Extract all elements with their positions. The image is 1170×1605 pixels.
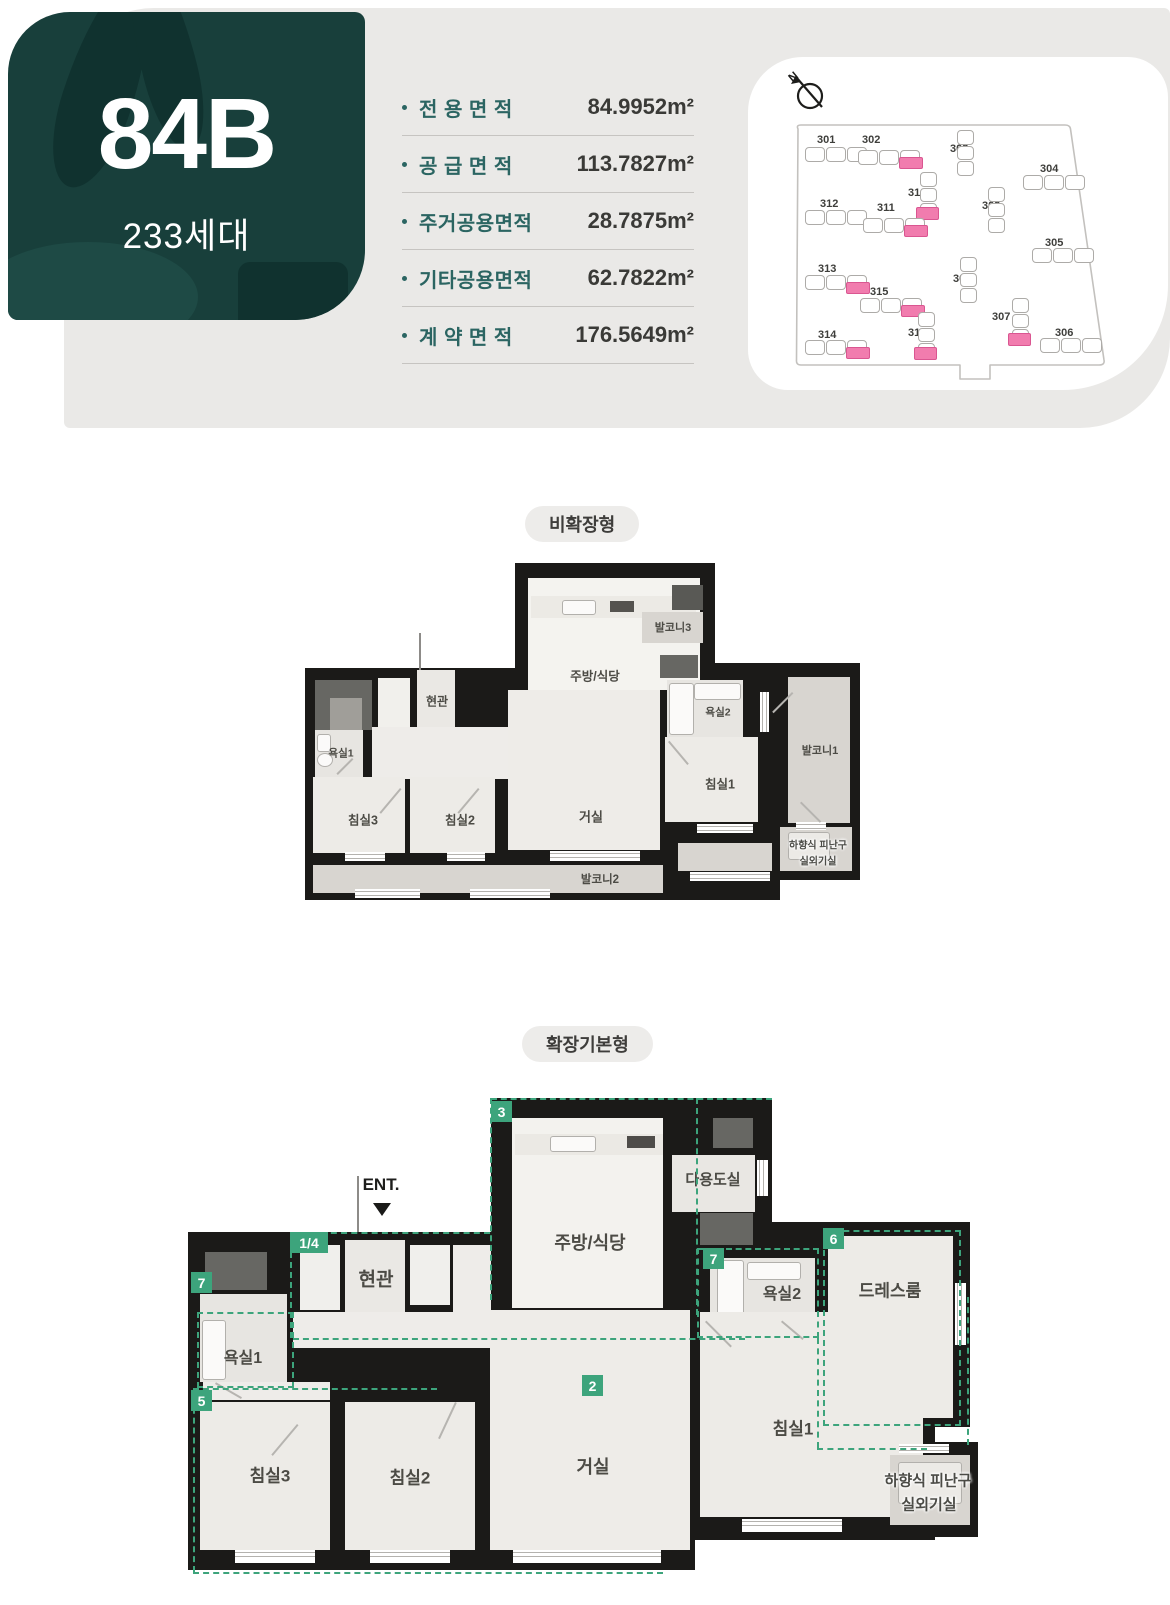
site-building-label-307: 307 <box>992 311 1010 323</box>
zone-dash <box>193 1572 663 1574</box>
pole-line <box>419 633 421 670</box>
zone-badge-2: 2 <box>582 1375 603 1396</box>
site-building-310 <box>920 172 937 218</box>
bullet-icon <box>402 219 407 224</box>
bullet-icon <box>402 105 407 110</box>
floorplan-non-expanded: 발코니3 주방/식당 현관 욕실1 침실3 침실2 거실 욕실2 침실1 발코니… <box>300 560 865 905</box>
bullet-icon <box>402 276 407 281</box>
site-building-316 <box>918 312 935 358</box>
bathtub-icon <box>669 683 694 735</box>
site-building-309 <box>988 187 1005 233</box>
room-label-bed1: 침실1 <box>705 774 735 793</box>
bullet-icon <box>402 162 407 167</box>
site-building-label-311: 311 <box>877 202 895 214</box>
room-label-evac-line2: 실외기실 <box>901 1494 956 1515</box>
room-label-kitchen: 주방/식당 <box>554 1229 625 1255</box>
area-value: 62.7822m² <box>571 265 694 291</box>
site-building-307 <box>1012 298 1029 344</box>
stove-icon <box>627 1136 655 1148</box>
pole-line <box>357 1176 359 1232</box>
room-label-bed2: 침실2 <box>390 1464 431 1489</box>
room-fill-balcony2-ext <box>678 843 772 871</box>
room-label-evac-line1: 하향식 피난구 <box>885 1470 972 1491</box>
unit-hero-card: 84B 233세대 <box>8 12 365 320</box>
area-row: 공 급 면 적 113.7827m² <box>402 136 694 193</box>
tab-non-expanded: 비확장형 <box>525 506 639 542</box>
area-row: 기타공용면적 62.7822m² <box>402 250 694 307</box>
site-building-313 <box>805 275 867 290</box>
window <box>550 851 640 861</box>
room-label-bath2: 욕실2 <box>705 705 730 720</box>
site-building-312 <box>805 210 867 225</box>
area-value: 28.7875m² <box>571 208 694 234</box>
washbasin-icon <box>694 683 741 700</box>
window <box>513 1550 661 1563</box>
window <box>757 1160 768 1196</box>
duct-shaft <box>205 1252 267 1290</box>
tab-non-expanded-label: 비확장형 <box>549 511 615 537</box>
room-label-balcony3: 발코니3 <box>655 619 691 635</box>
entrance-arrow-icon <box>373 1203 391 1216</box>
site-building-304 <box>1023 175 1085 190</box>
room-label-living: 거실 <box>576 1453 609 1479</box>
area-label: 전 용 면 적 <box>419 93 571 122</box>
tab-expanded: 확장기본형 <box>522 1026 653 1062</box>
window <box>235 1550 315 1563</box>
area-label: 공 급 면 적 <box>419 150 571 179</box>
room-fill-living <box>508 690 660 850</box>
site-building-label-301: 301 <box>817 134 835 146</box>
room-fill-living <box>490 1310 690 1550</box>
area-value: 113.7827m² <box>571 151 694 177</box>
room-label-evac-line1: 하향식 피난구 <box>789 837 847 852</box>
room-fill-hall <box>372 727 508 779</box>
room-label-evac-line2: 실외기실 <box>800 853 837 868</box>
site-building-302 <box>858 150 920 165</box>
duct-shaft <box>672 585 703 610</box>
site-building-314 <box>805 340 867 355</box>
area-spec-list: 전 용 면 적 84.9952m² 공 급 면 적 113.7827m² 주거공… <box>402 79 694 364</box>
area-row: 전 용 면 적 84.9952m² <box>402 79 694 136</box>
window <box>742 1519 842 1532</box>
window <box>447 852 485 861</box>
window <box>355 889 420 898</box>
area-label: 기타공용면적 <box>419 264 571 293</box>
site-building-label-313: 313 <box>818 263 836 275</box>
tab-expanded-label: 확장기본형 <box>546 1031 629 1057</box>
unit-households: 233세대 <box>8 208 365 259</box>
site-building-label-312: 312 <box>820 198 838 210</box>
room-label-bath1: 욕실1 <box>224 1344 262 1368</box>
zone-badge-3: 3 <box>491 1101 512 1122</box>
site-building-label-302: 302 <box>862 134 880 146</box>
sink-icon <box>562 600 596 615</box>
shaft-inner <box>330 698 362 730</box>
room-label-bed3: 침실3 <box>348 810 378 829</box>
site-building-303 <box>957 130 974 176</box>
site-building-label-304: 304 <box>1040 163 1058 175</box>
zone-badge-6: 6 <box>823 1228 844 1249</box>
window <box>370 1550 450 1563</box>
room-fill-hallway <box>453 1245 491 1312</box>
bullet-icon <box>402 333 407 338</box>
window <box>470 889 550 898</box>
stove-icon <box>610 601 634 612</box>
site-building-label-315: 315 <box>870 286 888 298</box>
area-row: 주거공용면적 28.7875m² <box>402 193 694 250</box>
entrance-label: ENT. <box>363 1175 400 1195</box>
window <box>690 872 770 881</box>
room-label-entrance: 현관 <box>359 1265 394 1292</box>
zone-badge-5: 5 <box>191 1390 212 1411</box>
window <box>796 822 826 830</box>
site-building-308 <box>960 257 977 303</box>
area-value: 176.5649m² <box>571 322 694 348</box>
zone-badge-7-right: 7 <box>703 1248 724 1269</box>
area-row: 계 약 면 적 176.5649m² <box>402 307 694 364</box>
room-fill-closet <box>378 678 410 727</box>
window <box>697 824 753 833</box>
room-label-balcony1: 발코니1 <box>802 742 838 758</box>
room-label-kitchen: 주방/식당 <box>570 666 619 685</box>
window <box>345 852 385 861</box>
window <box>760 692 769 732</box>
room-fill-closet <box>410 1245 450 1305</box>
room-label-balcony2: 발코니2 <box>581 871 619 887</box>
site-building-305 <box>1032 248 1094 263</box>
room-label-dress: 드레스룸 <box>859 1277 922 1302</box>
site-buildings-layer: 3013023033043103123113093053133153083073… <box>748 57 1168 390</box>
room-label-entrance: 현관 <box>426 693 448 710</box>
bathtub-icon <box>202 1320 226 1380</box>
duct-shaft <box>660 655 698 678</box>
floorplan-expanded: 주방/식당 다용도실 ENT. 현관 욕실1 침실3 침실2 거실 욕실2 드레… <box>185 1072 980 1592</box>
sink-icon <box>550 1136 596 1152</box>
duct-shaft <box>713 1118 753 1148</box>
site-building-306 <box>1040 338 1102 353</box>
room-fill-closet <box>300 1245 340 1310</box>
site-building-311 <box>863 218 925 233</box>
window <box>955 1283 966 1345</box>
site-plan-card: N 30130230330431031231130930531331530830… <box>748 57 1168 390</box>
room-label-utility: 다용도실 <box>685 1169 740 1190</box>
zone-badge-1-4: 1/4 <box>290 1232 328 1253</box>
room-fill-hallway <box>293 1312 490 1348</box>
duct-shaft <box>700 1213 753 1245</box>
room-label-bed1: 침실1 <box>773 1415 814 1440</box>
window <box>899 1444 949 1453</box>
unit-code: 84B <box>8 84 365 184</box>
room-fill-corridor <box>203 1382 330 1400</box>
site-building-315 <box>860 298 922 313</box>
area-value: 84.9952m² <box>571 94 694 120</box>
room-label-bed3: 침실3 <box>250 1462 291 1487</box>
zone-badge-7-left: 7 <box>191 1272 212 1293</box>
area-label: 주거공용면적 <box>419 207 571 236</box>
chair-decoration <box>238 262 348 320</box>
washbasin-icon <box>747 1262 801 1280</box>
area-label: 계 약 면 적 <box>419 321 571 350</box>
room-label-living: 거실 <box>579 807 603 826</box>
room-label-bath2: 욕실2 <box>763 1280 801 1304</box>
